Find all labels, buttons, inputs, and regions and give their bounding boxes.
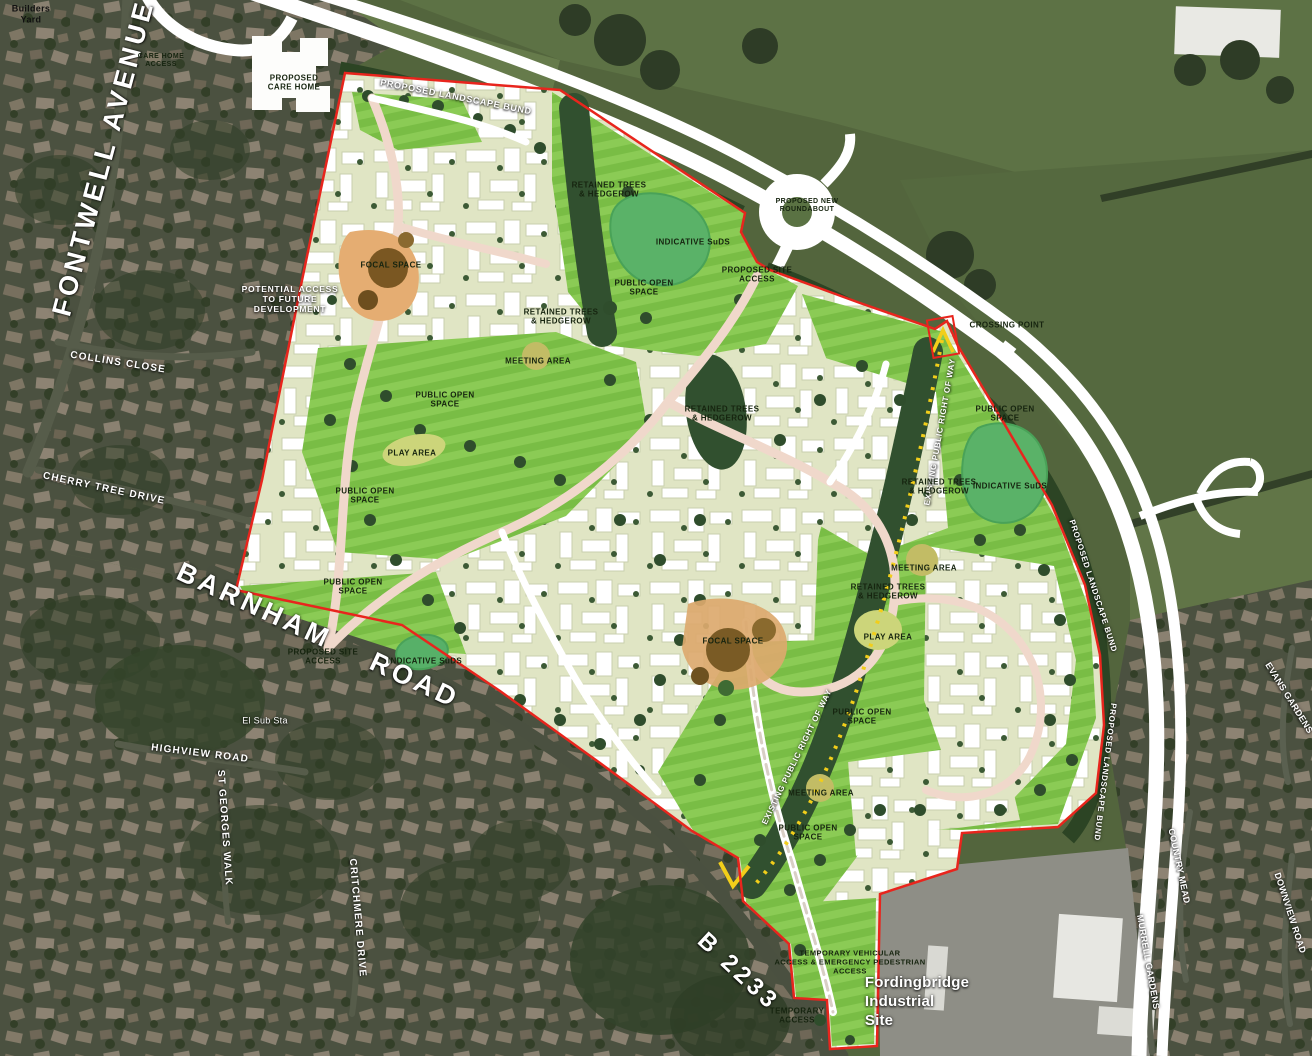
masterplan-map: Builders Yard FONTWELL AVENUE CARE HOME … [0,0,1312,1056]
masterplan-graphic [0,0,1312,1056]
